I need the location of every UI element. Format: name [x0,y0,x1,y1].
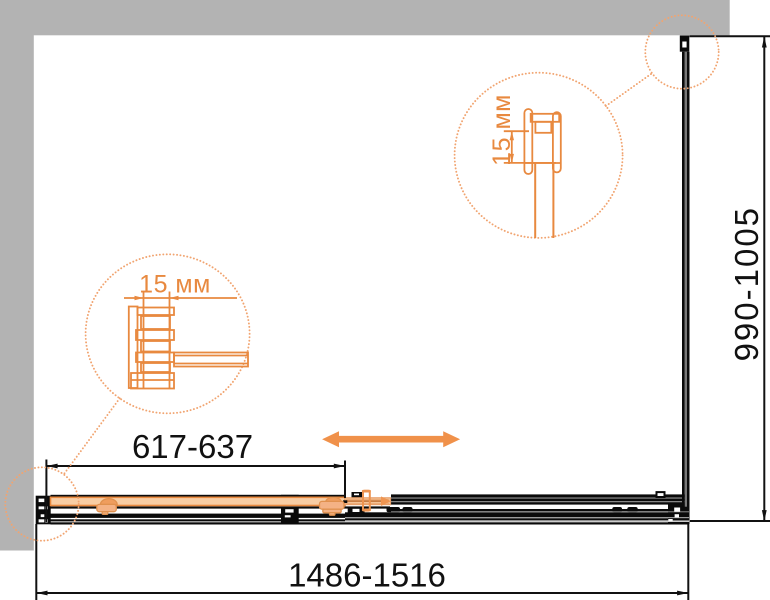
svg-text:1486-1516: 1486-1516 [288,557,446,594]
svg-text:617-637: 617-637 [132,428,253,465]
svg-text:15 мм: 15 мм [488,94,516,166]
svg-text:990-1005: 990-1005 [728,206,765,361]
svg-text:15 мм: 15 мм [139,271,211,299]
